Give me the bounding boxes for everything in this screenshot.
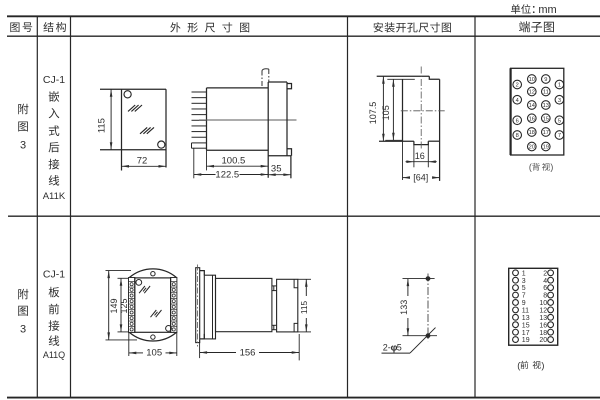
svg-text:[64]: [64] [413, 173, 428, 183]
svg-text:): ) [541, 360, 544, 370]
svg-text:5: 5 [397, 343, 402, 353]
svg-text:105: 105 [146, 347, 162, 358]
svg-text:3: 3 [20, 140, 26, 152]
svg-text:12: 12 [529, 90, 535, 96]
svg-text:115: 115 [97, 118, 108, 133]
svg-text:122.5: 122.5 [215, 169, 239, 180]
svg-text:7: 7 [558, 133, 561, 139]
svg-text:CJ-1: CJ-1 [43, 268, 65, 280]
svg-text:A11Q: A11Q [43, 350, 65, 360]
svg-text:5: 5 [558, 118, 561, 124]
svg-text:11: 11 [522, 308, 529, 315]
svg-text:4: 4 [516, 98, 519, 104]
svg-text:16: 16 [539, 322, 547, 329]
svg-text:20: 20 [539, 337, 547, 344]
svg-text:14: 14 [529, 103, 535, 109]
svg-text:15: 15 [522, 322, 530, 329]
svg-text:3: 3 [20, 324, 26, 336]
svg-text:(: ( [517, 360, 520, 370]
svg-text:115: 115 [299, 301, 309, 315]
svg-text:): ) [550, 162, 553, 172]
svg-text:10: 10 [539, 300, 547, 307]
svg-text:13: 13 [539, 315, 547, 322]
svg-text:7: 7 [522, 293, 526, 300]
svg-text:9: 9 [544, 77, 547, 83]
svg-text:12: 12 [539, 308, 547, 315]
svg-text:17: 17 [543, 130, 549, 136]
svg-text:2: 2 [516, 83, 519, 89]
svg-text:8: 8 [516, 133, 519, 139]
svg-text:A11K: A11K [43, 191, 66, 202]
svg-text:18: 18 [539, 330, 547, 337]
svg-text:3: 3 [558, 98, 561, 104]
svg-text:107.5: 107.5 [368, 102, 378, 125]
svg-text:19: 19 [522, 337, 530, 344]
svg-text:10: 10 [529, 77, 535, 83]
svg-text:15: 15 [543, 116, 549, 122]
svg-text:1: 1 [522, 270, 526, 277]
svg-text:18: 18 [529, 130, 535, 136]
svg-text:6: 6 [516, 118, 519, 124]
svg-text:CJ-1: CJ-1 [43, 74, 65, 86]
svg-text:13: 13 [543, 103, 549, 109]
svg-text:16: 16 [415, 151, 425, 161]
svg-text:9: 9 [522, 300, 526, 307]
svg-text:6: 6 [543, 285, 547, 292]
svg-text:17: 17 [522, 330, 530, 337]
svg-text:8: 8 [543, 293, 547, 300]
svg-text:13: 13 [522, 315, 530, 322]
svg-text:4: 4 [543, 278, 547, 285]
svg-text:156: 156 [240, 348, 256, 359]
svg-text:16: 16 [529, 116, 535, 122]
svg-text:105: 105 [381, 105, 391, 120]
svg-text:(: ( [529, 162, 532, 172]
svg-text:2: 2 [543, 270, 547, 277]
svg-text:3: 3 [522, 278, 526, 285]
svg-text:19: 19 [543, 145, 549, 151]
svg-text:72: 72 [137, 155, 148, 166]
svg-text:1: 1 [558, 83, 561, 89]
svg-text:100.5: 100.5 [222, 155, 246, 166]
svg-text:11: 11 [543, 90, 549, 96]
svg-text:mm: mm [538, 4, 556, 16]
svg-text:5: 5 [522, 285, 526, 292]
svg-text:149: 149 [109, 298, 119, 313]
svg-text:20: 20 [529, 145, 535, 151]
svg-text:125: 125 [119, 298, 129, 313]
svg-text:133: 133 [399, 300, 409, 315]
svg-text:35: 35 [271, 164, 282, 175]
